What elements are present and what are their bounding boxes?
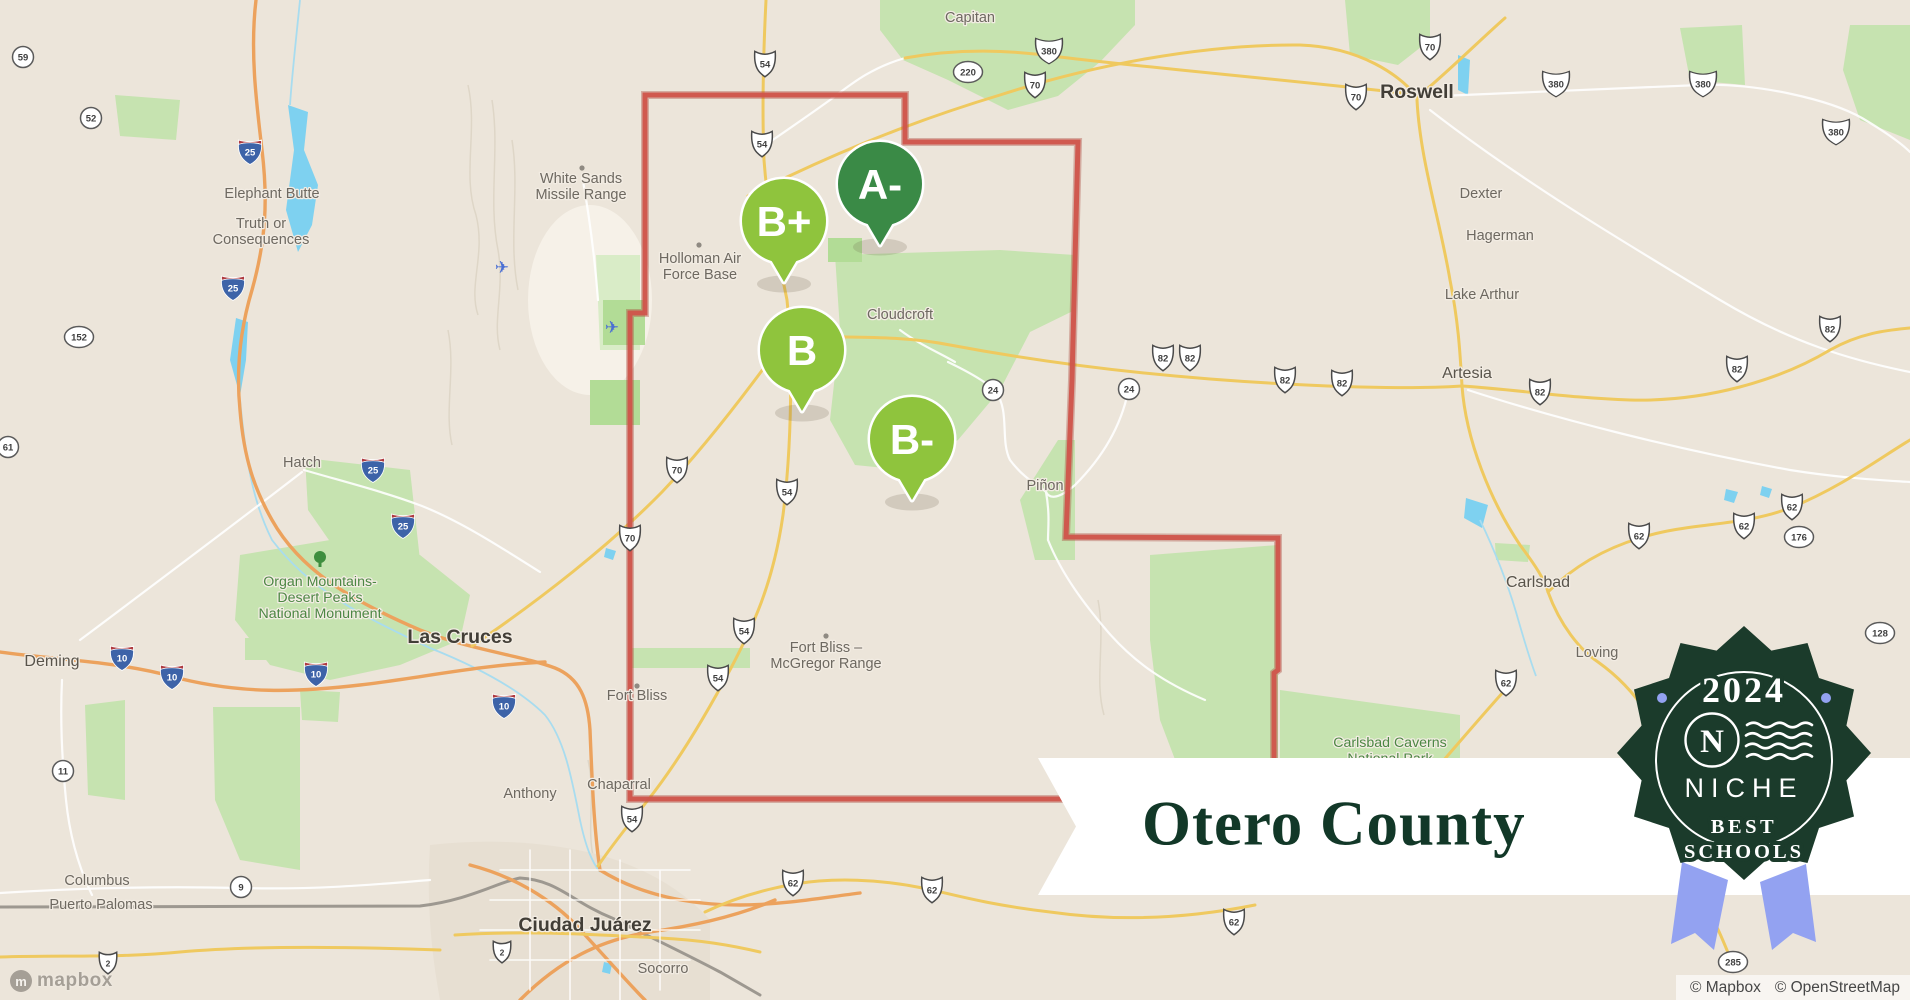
svg-text:82: 82 (1535, 388, 1546, 399)
route-shield: 10 (304, 662, 327, 687)
svg-text:62: 62 (1501, 679, 1512, 690)
svg-text:380: 380 (1695, 80, 1711, 91)
route-shield: 24 (1119, 379, 1140, 400)
place-label: Hagerman (1466, 228, 1534, 244)
route-shield: 70 (1420, 34, 1441, 59)
school-grade-text: A- (858, 161, 902, 208)
route-shield: 285 (1719, 952, 1748, 973)
svg-text:82: 82 (1158, 354, 1169, 365)
svg-text:82: 82 (1280, 376, 1291, 387)
place-label: Piñon (1026, 478, 1063, 494)
svg-text:25: 25 (245, 148, 256, 159)
place-label: Roswell (1380, 81, 1454, 103)
route-shield: 82 (1275, 367, 1296, 392)
route-shield: 62 (922, 877, 943, 902)
svg-text:9: 9 (238, 883, 243, 894)
place-label: Puerto Palomas (49, 897, 152, 913)
svg-text:62: 62 (788, 879, 799, 890)
svg-text:70: 70 (625, 534, 636, 545)
svg-text:380: 380 (1041, 47, 1057, 58)
route-shield: 59 (13, 47, 34, 68)
route-shield: 54 (734, 618, 755, 643)
svg-text:59: 59 (18, 53, 29, 64)
svg-text:54: 54 (760, 60, 771, 71)
svg-text:52: 52 (86, 114, 97, 125)
route-shield: 82 (1530, 379, 1551, 404)
route-shield: 82 (1727, 356, 1748, 381)
svg-text:62: 62 (1229, 918, 1240, 929)
route-shield: 10 (492, 694, 515, 719)
route-shield: 9 (231, 877, 252, 898)
route-shield: 25 (238, 140, 261, 165)
route-shield: 70 (1346, 84, 1367, 109)
route-shield: 220 (954, 62, 983, 83)
place-label: Hatch (283, 455, 321, 471)
route-shield: 62 (783, 870, 804, 895)
school-grade-marker[interactable]: B+ (742, 179, 826, 293)
airport-icon: ✈ (495, 258, 509, 277)
map-attribution: © Mapbox © OpenStreetMap (1676, 975, 1910, 1000)
svg-text:62: 62 (927, 886, 938, 897)
place-label: Ciudad Juárez (518, 914, 652, 936)
route-shield: 62 (1629, 523, 1650, 548)
svg-text:82: 82 (1185, 354, 1196, 365)
place-label: Deming (24, 653, 79, 670)
school-grade-text: B (787, 327, 817, 374)
mapbox-logo[interactable]: m mapbox (10, 970, 113, 992)
route-shield: 10 (160, 665, 183, 690)
place-label: Carlsbad (1506, 574, 1570, 591)
poi-dot (696, 242, 701, 247)
poi-dot (579, 165, 584, 170)
svg-text:61: 61 (3, 443, 14, 454)
place-label: White SandsMissile Range (535, 171, 626, 203)
route-shield: 82 (1153, 345, 1174, 370)
svg-text:10: 10 (311, 670, 322, 681)
place-label: Capitan (945, 10, 995, 26)
poi-dot (823, 633, 828, 638)
route-shield: 128 (1866, 623, 1895, 644)
svg-text:62: 62 (1634, 532, 1645, 543)
svg-text:62: 62 (1787, 503, 1798, 514)
svg-text:285: 285 (1725, 958, 1742, 969)
route-shield: 380 (1543, 71, 1570, 96)
svg-text:82: 82 (1337, 379, 1348, 390)
school-grade-text: B+ (757, 198, 812, 245)
route-shield: 25 (221, 276, 244, 301)
route-shield: 176 (1785, 527, 1814, 548)
mapbox-logo-icon: m (10, 970, 32, 992)
svg-text:70: 70 (672, 466, 683, 477)
place-label: Chaparral (587, 777, 651, 793)
place-label: Holloman AirForce Base (659, 251, 741, 283)
svg-text:10: 10 (499, 702, 510, 713)
place-label: Columbus (64, 873, 129, 889)
route-shield: 24 (983, 380, 1004, 401)
svg-text:25: 25 (228, 284, 239, 295)
svg-text:70: 70 (1351, 93, 1362, 104)
svg-text:62: 62 (1739, 522, 1750, 533)
route-shield: 152 (65, 327, 94, 348)
place-label: Dexter (1460, 186, 1503, 202)
airport-icon: ✈ (605, 318, 619, 337)
route-shield: 62 (1224, 909, 1245, 934)
place-label: Artesia (1442, 365, 1492, 382)
place-label: Las Cruces (407, 626, 512, 648)
svg-text:24: 24 (1124, 385, 1135, 396)
svg-text:2: 2 (500, 948, 505, 958)
svg-text:24: 24 (988, 386, 999, 397)
route-shield: 54 (752, 131, 773, 156)
svg-text:220: 220 (960, 68, 976, 79)
svg-text:152: 152 (71, 333, 87, 344)
school-grade-text: B- (890, 416, 934, 463)
svg-text:54: 54 (739, 627, 750, 638)
route-shield: 62 (1782, 494, 1803, 519)
svg-text:25: 25 (398, 522, 409, 533)
svg-text:82: 82 (1732, 365, 1743, 376)
svg-text:380: 380 (1548, 80, 1564, 91)
svg-text:54: 54 (782, 488, 793, 499)
svg-text:176: 176 (1791, 533, 1807, 544)
school-grade-marker[interactable]: B (760, 308, 844, 422)
route-shield: 82 (1332, 370, 1353, 395)
place-label: Anthony (503, 786, 557, 802)
svg-text:10: 10 (167, 673, 178, 684)
route-shield: 52 (81, 108, 102, 129)
place-label: Fort Bliss (607, 688, 667, 704)
route-shield: 380 (1690, 71, 1717, 96)
svg-text:54: 54 (627, 815, 638, 826)
svg-text:380: 380 (1828, 128, 1844, 139)
route-shield: 54 (755, 51, 776, 76)
osm-attribution-link[interactable]: © OpenStreetMap (1775, 979, 1900, 997)
map-screenshot: CapitanRoswellElephant ButteTruth orCons… (0, 0, 1910, 1000)
svg-text:128: 128 (1872, 629, 1888, 640)
place-label: Lake Arthur (1445, 287, 1519, 303)
svg-text:70: 70 (1030, 81, 1041, 92)
mapbox-logo-word: mapbox (37, 970, 113, 992)
route-shield: 61 (0, 437, 19, 458)
route-shield: 82 (1820, 316, 1841, 341)
place-label: Socorro (638, 961, 689, 977)
svg-text:54: 54 (713, 674, 724, 685)
poi-dot (634, 683, 639, 688)
county-banner-title: Otero County (1142, 787, 1526, 860)
route-shield: 380 (1823, 119, 1850, 144)
route-shield: 11 (53, 761, 74, 782)
school-grade-marker[interactable]: B- (870, 397, 954, 511)
route-shield: 62 (1734, 513, 1755, 538)
route-shield: 70 (667, 457, 688, 482)
place-label: Loving (1576, 645, 1619, 661)
forest-areas (85, 0, 1910, 870)
svg-text:11: 11 (58, 767, 69, 778)
place-label: Fort Bliss –McGregor Range (770, 640, 881, 672)
svg-text:82: 82 (1825, 325, 1836, 336)
svg-text:25: 25 (368, 466, 379, 477)
mapbox-attribution-link[interactable]: © Mapbox (1690, 979, 1761, 997)
route-shield: 62 (1496, 670, 1517, 695)
county-banner: Otero County (1038, 758, 1910, 895)
route-shield: 54 (777, 479, 798, 504)
svg-text:54: 54 (757, 140, 768, 151)
place-label: Cloudcroft (867, 307, 933, 323)
route-shield: 54 (708, 665, 729, 690)
place-label: Elephant Butte (224, 186, 319, 202)
svg-text:70: 70 (1425, 43, 1436, 54)
svg-text:10: 10 (117, 654, 128, 665)
route-shield: 82 (1180, 345, 1201, 370)
route-shield: 70 (620, 525, 641, 550)
svg-text:2: 2 (106, 959, 111, 969)
